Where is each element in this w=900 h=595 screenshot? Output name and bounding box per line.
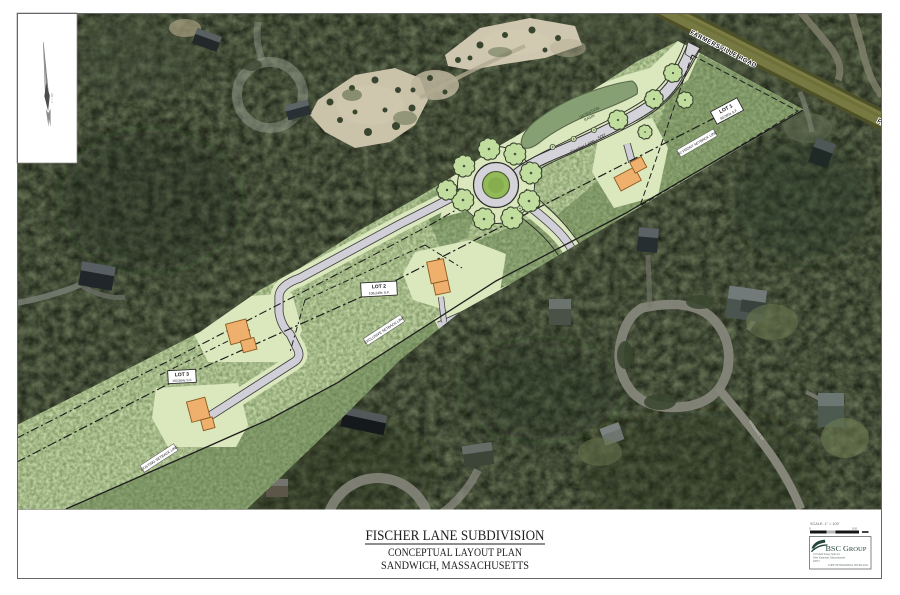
svg-text:LOT 2: LOT 2 (372, 284, 387, 291)
svg-text:02673: 02673 (813, 560, 820, 563)
svg-text:CONCEPTUAL LAYOUT PLAN: CONCEPTUAL LAYOUT PLAN (388, 547, 523, 559)
svg-text:FISCHER LANE SUBDIVISION: FISCHER LANE SUBDIVISION (366, 528, 545, 544)
svg-text:100: 100 (852, 527, 857, 531)
svg-text:COPY OF DRAWINGS 508 362 4541: COPY OF DRAWINGS 508 362 4541 (828, 564, 869, 567)
svg-text:1" = 100': 1" = 100' (50, 92, 54, 103)
svg-text:SANDWICH, MASSACHUSETTS: SANDWICH, MASSACHUSETTS (381, 560, 529, 572)
